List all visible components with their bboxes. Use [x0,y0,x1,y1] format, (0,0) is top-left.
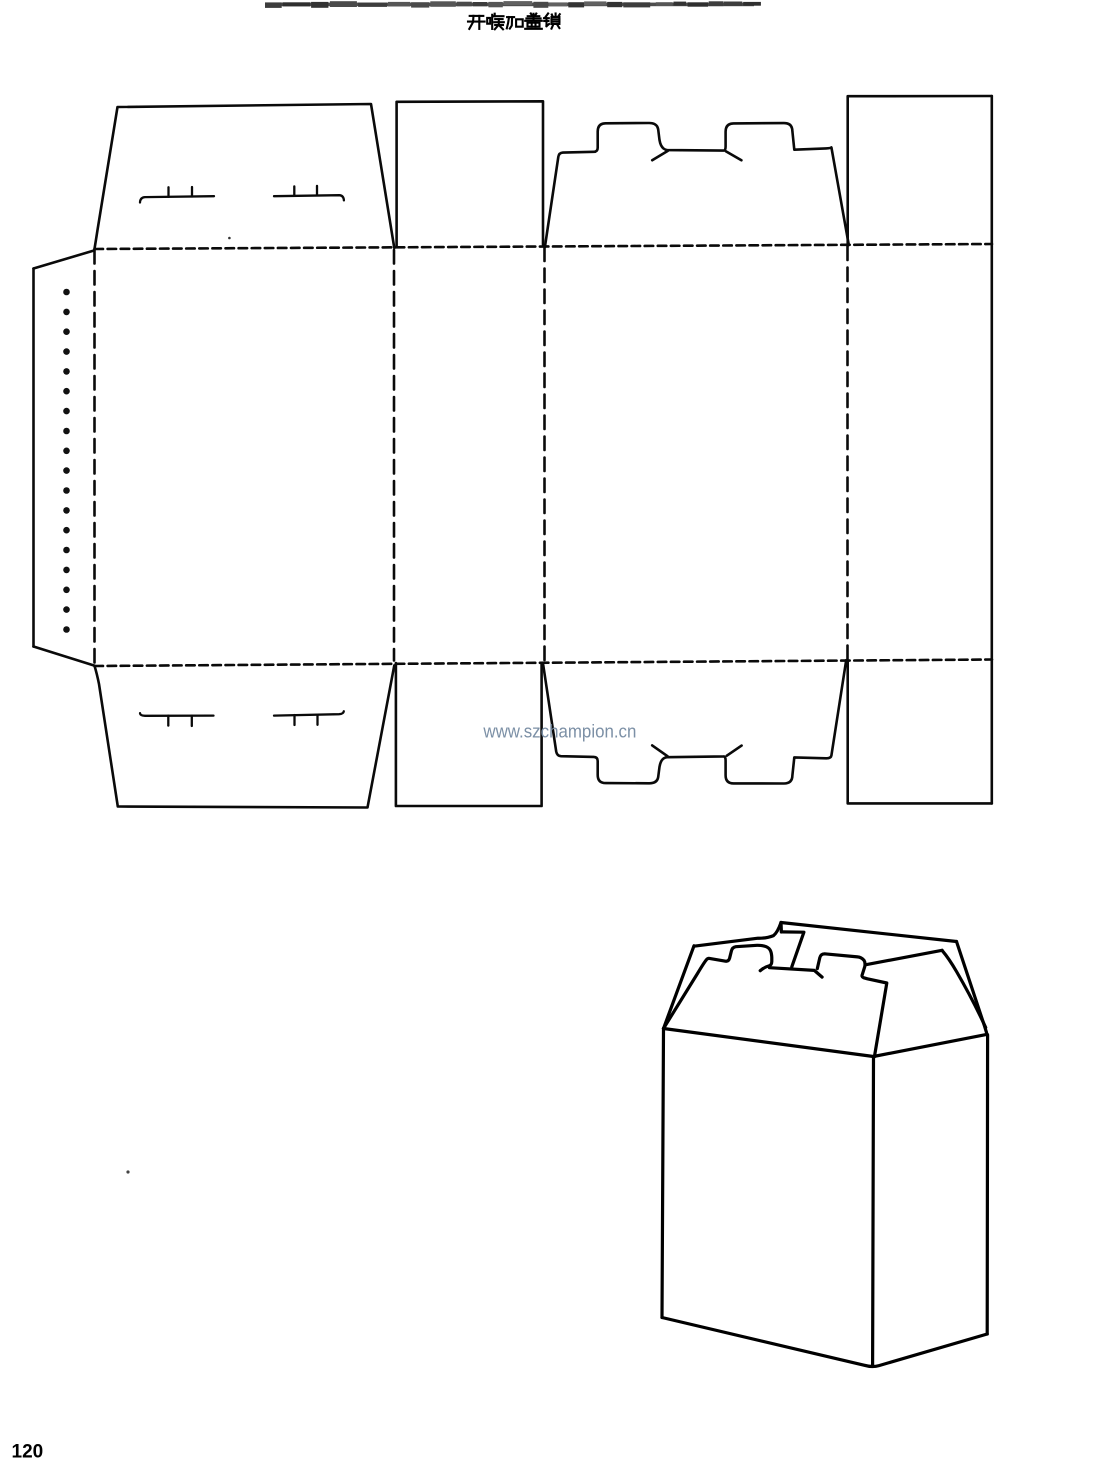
svg-text:120: 120 [12,1442,44,1463]
svg-text:www.szchampion.cn: www.szchampion.cn [482,722,636,742]
